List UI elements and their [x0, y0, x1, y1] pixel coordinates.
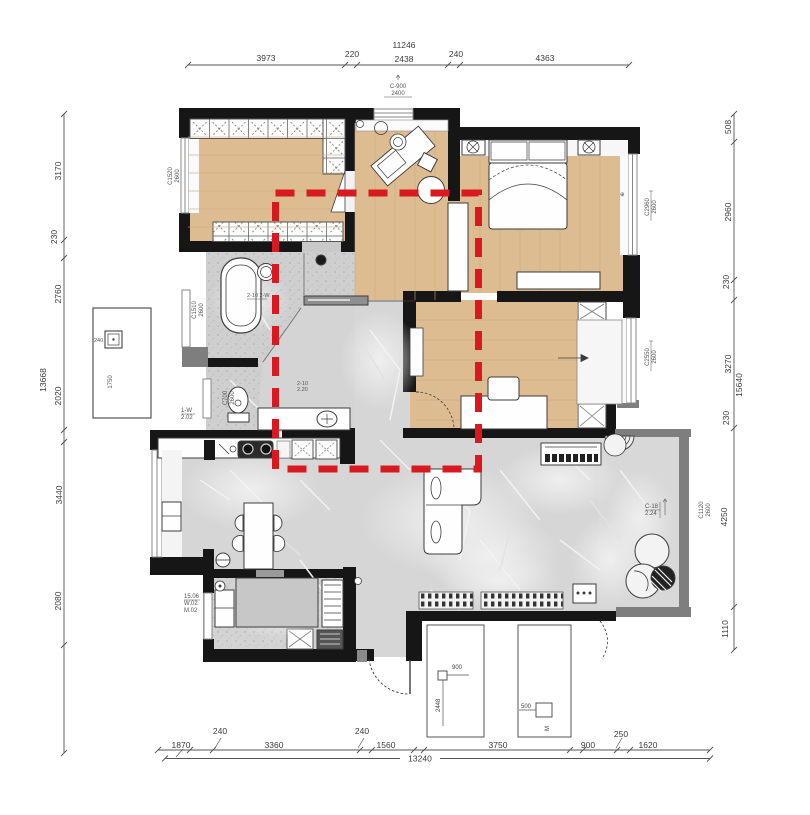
svg-text:240: 240: [355, 726, 369, 736]
svg-text:2600: 2600: [706, 503, 712, 517]
svg-text:11246: 11246: [392, 40, 415, 50]
svg-text:3360: 3360: [265, 740, 284, 750]
svg-text:2.24: 2.24: [645, 511, 657, 517]
svg-text:220: 220: [345, 49, 359, 59]
svg-text:900: 900: [452, 665, 463, 671]
svg-text:2448: 2448: [436, 698, 442, 712]
svg-text:13240: 13240: [408, 754, 432, 764]
svg-text:230: 230: [721, 275, 731, 289]
svg-text:2600: 2600: [652, 350, 658, 364]
svg-text:15.06: 15.06: [184, 594, 200, 600]
svg-text:2438: 2438: [395, 54, 414, 64]
svg-text:2020: 2020: [53, 386, 63, 405]
svg-text:2960: 2960: [723, 202, 733, 221]
svg-text:15640: 15640: [734, 373, 744, 397]
svg-text:2-10 2-W: 2-10 2-W: [247, 293, 270, 299]
svg-text:C-900: C-900: [390, 84, 407, 90]
svg-text:240: 240: [94, 338, 103, 344]
svg-text:2760: 2760: [53, 284, 63, 303]
svg-text:2600: 2600: [230, 391, 236, 405]
svg-text:1870: 1870: [172, 740, 191, 750]
svg-text:M.02: M.02: [184, 608, 198, 614]
svg-text:C1510: C1510: [192, 301, 198, 319]
svg-text:2.02: 2.02: [181, 415, 193, 421]
svg-text:2600: 2600: [652, 200, 658, 214]
svg-text:2400: 2400: [391, 91, 405, 97]
svg-text:C2550: C2550: [645, 348, 651, 366]
svg-text:2600: 2600: [175, 169, 181, 183]
svg-text:W.02: W.02: [184, 601, 198, 607]
svg-text:1750: 1750: [108, 375, 114, 389]
svg-text:C700: C700: [223, 390, 229, 405]
svg-text:1620: 1620: [639, 740, 658, 750]
svg-text:4363: 4363: [536, 53, 555, 63]
svg-text:⊕: ⊕: [620, 192, 625, 198]
svg-text:C-18: C-18: [645, 504, 659, 510]
svg-text:C2960: C2960: [645, 198, 651, 216]
svg-text:240: 240: [213, 726, 227, 736]
svg-text:2.20: 2.20: [297, 387, 308, 393]
svg-text:500: 500: [521, 704, 532, 710]
svg-text:2080: 2080: [53, 591, 63, 610]
svg-text:1110: 1110: [720, 620, 730, 638]
svg-text:3170: 3170: [53, 161, 63, 180]
svg-text:C1520: C1520: [168, 167, 174, 185]
svg-text:M: M: [545, 726, 551, 731]
svg-text:3750: 3750: [489, 740, 508, 750]
svg-text:250: 250: [614, 729, 628, 739]
svg-text:2600: 2600: [199, 303, 205, 317]
svg-text:900: 900: [581, 740, 595, 750]
svg-text:240: 240: [449, 49, 463, 59]
svg-text:3973: 3973: [257, 53, 276, 63]
svg-text:230: 230: [721, 411, 731, 425]
svg-text:3270: 3270: [723, 354, 733, 373]
svg-text:3440: 3440: [54, 485, 64, 504]
svg-text:1-W: 1-W: [181, 408, 192, 414]
svg-text:1560: 1560: [377, 740, 396, 750]
svg-text:508: 508: [723, 120, 733, 134]
svg-text:4250: 4250: [719, 507, 729, 526]
svg-text:230: 230: [49, 230, 59, 244]
svg-text:C1120: C1120: [699, 501, 705, 519]
svg-text:13668: 13668: [38, 368, 48, 392]
